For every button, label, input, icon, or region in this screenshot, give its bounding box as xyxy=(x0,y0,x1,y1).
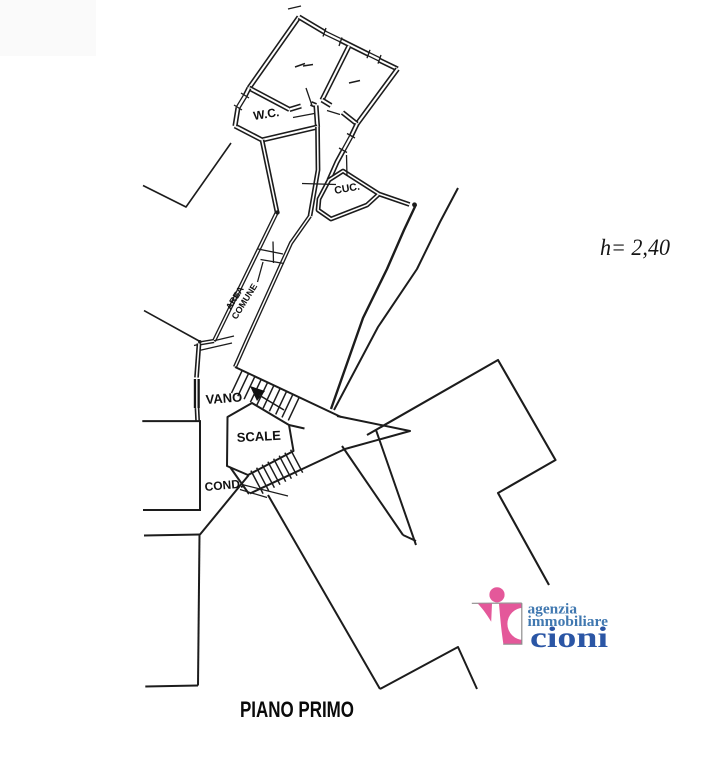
svg-text:PIANO PRIMO: PIANO PRIMO xyxy=(240,697,354,722)
svg-text:cioni: cioni xyxy=(530,621,608,654)
svg-text:SCALE: SCALE xyxy=(236,428,281,445)
svg-text:h= 2,40: h= 2,40 xyxy=(600,235,670,260)
svg-text:VANO: VANO xyxy=(205,389,243,407)
